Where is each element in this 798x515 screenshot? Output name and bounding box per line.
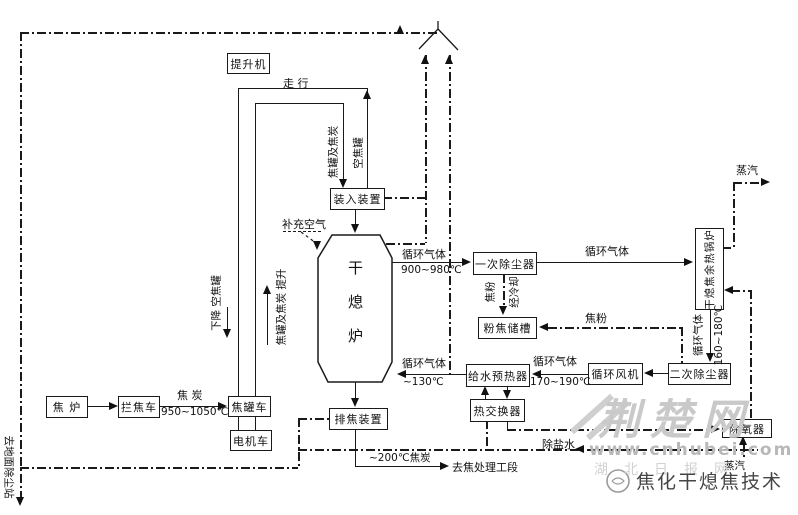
coke-powder-tank-label: 粉焦储槽 xyxy=(484,320,532,336)
coke-powder-line xyxy=(548,327,681,329)
supplement-air-label: 补充空气 xyxy=(282,216,326,232)
coke-powder-riser xyxy=(681,327,683,363)
steam-out-arrow xyxy=(761,178,770,186)
steam-label-1: 蒸汽 xyxy=(736,162,758,178)
deaerator-to-boiler-riser xyxy=(750,290,752,419)
circulating-gas-label-2: 循环气体 xyxy=(585,243,629,259)
boundary-vent-arrow xyxy=(396,25,404,34)
coke-powder-tank-box: 粉焦储槽 xyxy=(478,317,537,339)
exchanger-down-arrow xyxy=(503,390,511,399)
descend-arrow xyxy=(223,329,231,338)
dust-line-bottom xyxy=(20,467,298,469)
vent-stack-icon xyxy=(419,21,458,50)
coke-guide-car-box: 拦焦车 xyxy=(118,396,160,418)
steam-label-2: 蒸汽 xyxy=(724,458,745,473)
coke-tank-car-label: 焦罐车 xyxy=(232,399,268,415)
circulating-gas-label-3: 循环气体 xyxy=(533,353,577,369)
secondary-dust-collector-box: 二次除尘器 xyxy=(668,363,731,385)
descend-arrow-shaft xyxy=(227,307,228,330)
heat-exchanger-box: 热交换器 xyxy=(470,399,525,422)
track-to-locomotive-1 xyxy=(238,415,239,430)
furnace-to-discharger-line xyxy=(355,382,356,399)
cdq-process-flow-diagram: 提升机 装入装置 一次除尘器 粉焦储槽 给水预热器 循环风机 二次除尘器 热交换… xyxy=(0,0,798,515)
primary-dust-collector-label: 一次除尘器 xyxy=(475,256,535,272)
charging-to-furnace-arrow xyxy=(351,224,359,233)
electric-locomotive-label: 电机车 xyxy=(233,433,269,449)
feedwater-preheater-box: 给水预热器 xyxy=(466,364,530,387)
steam-to-deaerator-shaft xyxy=(743,443,745,458)
vent-arrow-b xyxy=(445,55,453,64)
coke-200-label: ~200℃焦炭 xyxy=(369,450,431,465)
diagram-shapes-layer xyxy=(0,0,798,515)
coke-powder-arrow xyxy=(539,323,548,331)
coke-powder-label: 焦粉 xyxy=(585,310,607,326)
dust-line-riser xyxy=(298,418,300,467)
exchanger-to-deaerator-line xyxy=(507,429,712,431)
watermark-seal-icon xyxy=(607,470,629,492)
coke-label: 焦 炭 xyxy=(177,387,203,403)
secondary-dust-collector-label: 二次除尘器 xyxy=(670,366,730,382)
charging-vent-branch xyxy=(383,197,425,199)
secondary-to-fan-arrow xyxy=(644,369,653,377)
quenching-furnace-label: 干熄炉 xyxy=(340,260,366,372)
vent-arrow-a xyxy=(421,55,429,64)
discharger-out-line xyxy=(355,466,441,467)
exchanger-up-arrow xyxy=(481,386,489,395)
furnace-to-discharger-arrow xyxy=(351,398,359,407)
circulating-fan-box: 循环风机 xyxy=(588,363,643,385)
to-dust-station-arrow xyxy=(16,497,24,506)
secondary-to-fan-line xyxy=(653,373,668,374)
desalted-water-arrow xyxy=(575,445,584,453)
deaerator-to-boiler-line xyxy=(731,290,750,292)
deaerator-box: 除氧器 xyxy=(722,419,772,438)
watermark-seal-scribble xyxy=(612,478,624,484)
exchanger-water-drop xyxy=(486,420,488,449)
track-inner-top xyxy=(255,103,343,104)
furnace-to-primary-line xyxy=(392,262,463,263)
coke-oven-label: 焦 炉 xyxy=(53,399,82,415)
fan-to-preheater-line xyxy=(541,374,588,375)
boiler-steam-out-2 xyxy=(733,182,735,247)
boundary-top-line xyxy=(20,32,437,34)
coke-discharge-device-box: 排焦装置 xyxy=(329,408,388,430)
vent-line-b xyxy=(449,55,451,374)
hoist-label: 提升机 xyxy=(231,56,267,72)
feedwater-preheater-label: 给水预热器 xyxy=(468,368,528,384)
oven-to-guide-line xyxy=(86,406,110,407)
coke-guide-car-label: 拦焦车 xyxy=(121,399,157,415)
circulating-gas-label-4: 循环气体 xyxy=(402,355,446,371)
watermark-brush-strokes xyxy=(572,396,628,438)
empty-tank-up-arrow xyxy=(363,90,371,99)
charging-device-box: 装入装置 xyxy=(330,188,385,210)
charging-device-label: 装入装置 xyxy=(334,191,382,207)
vent-line-a xyxy=(425,55,427,243)
primary-to-tank-line xyxy=(503,274,505,307)
discharger-down-line xyxy=(355,428,356,466)
watermark-caption: 焦化干熄焦技术 xyxy=(636,467,783,494)
to-coke-handling-label: 去焦处理工段 xyxy=(452,459,518,475)
desalted-water-label: 除盐水 xyxy=(542,436,575,452)
temp-130-label: ~130℃ xyxy=(403,376,444,388)
deaerator-to-boiler-arrow xyxy=(724,286,733,294)
coke-discharge-device-label: 排焦装置 xyxy=(335,411,383,427)
electric-locomotive-box: 电机车 xyxy=(230,430,272,451)
primary-to-boiler-arrow xyxy=(684,258,693,266)
deaerator-label: 除氧器 xyxy=(729,421,765,437)
preheater-to-furnace-line xyxy=(406,374,466,375)
dust-line-to-discharger xyxy=(298,418,329,420)
waste-heat-boiler-box: 干熄焦余热锅炉 xyxy=(695,228,724,310)
travel-label: 走 行 xyxy=(283,75,309,91)
coke-oven-box: 焦 炉 xyxy=(46,396,88,418)
primary-dust-collector-box: 一次除尘器 xyxy=(473,252,537,275)
desalted-water-line xyxy=(298,449,758,451)
to-coke-handling-arrow xyxy=(440,462,449,470)
circulating-gas-label-1: 循环气体 xyxy=(402,246,446,262)
track-inner-left xyxy=(255,103,256,396)
boundary-left-line xyxy=(20,32,22,502)
coke-tank-car-box: 焦罐车 xyxy=(228,396,271,417)
exchanger-to-deaerator-arrow xyxy=(711,425,720,433)
oven-to-guide-arrow xyxy=(109,402,118,410)
lift-arrow-shaft xyxy=(267,292,268,345)
track-to-locomotive-2 xyxy=(255,415,256,430)
track-inner-right xyxy=(343,103,344,180)
furnace-to-primary-arrow xyxy=(462,258,471,266)
circulating-fan-label: 循环风机 xyxy=(592,366,640,382)
temp-900-980-label: 900~980℃ xyxy=(401,264,462,276)
heat-exchanger-label: 热交换器 xyxy=(474,403,522,419)
furnace-top-vent-branch xyxy=(386,243,425,245)
temp-170-190-label: 170~190℃ xyxy=(530,376,591,388)
track-outer-right xyxy=(367,88,368,188)
waste-heat-boiler-label: 干熄焦余热锅炉 xyxy=(702,229,717,310)
hoist-box: 提升机 xyxy=(227,53,270,74)
boiler-to-secondary-line xyxy=(710,308,711,354)
track-outer-left xyxy=(238,88,239,396)
primary-to-boiler-line xyxy=(535,262,684,263)
full-tank-down-arrow xyxy=(339,179,347,188)
boiler-steam-out-3 xyxy=(733,182,762,184)
charging-to-furnace-line xyxy=(355,208,356,225)
temp-950-1050-label: 950~1050℃ xyxy=(161,406,228,418)
lift-arrow xyxy=(263,285,271,294)
watermark-paper-name: 湖北日报网 xyxy=(594,459,744,479)
supplement-air-arrow xyxy=(313,241,321,250)
